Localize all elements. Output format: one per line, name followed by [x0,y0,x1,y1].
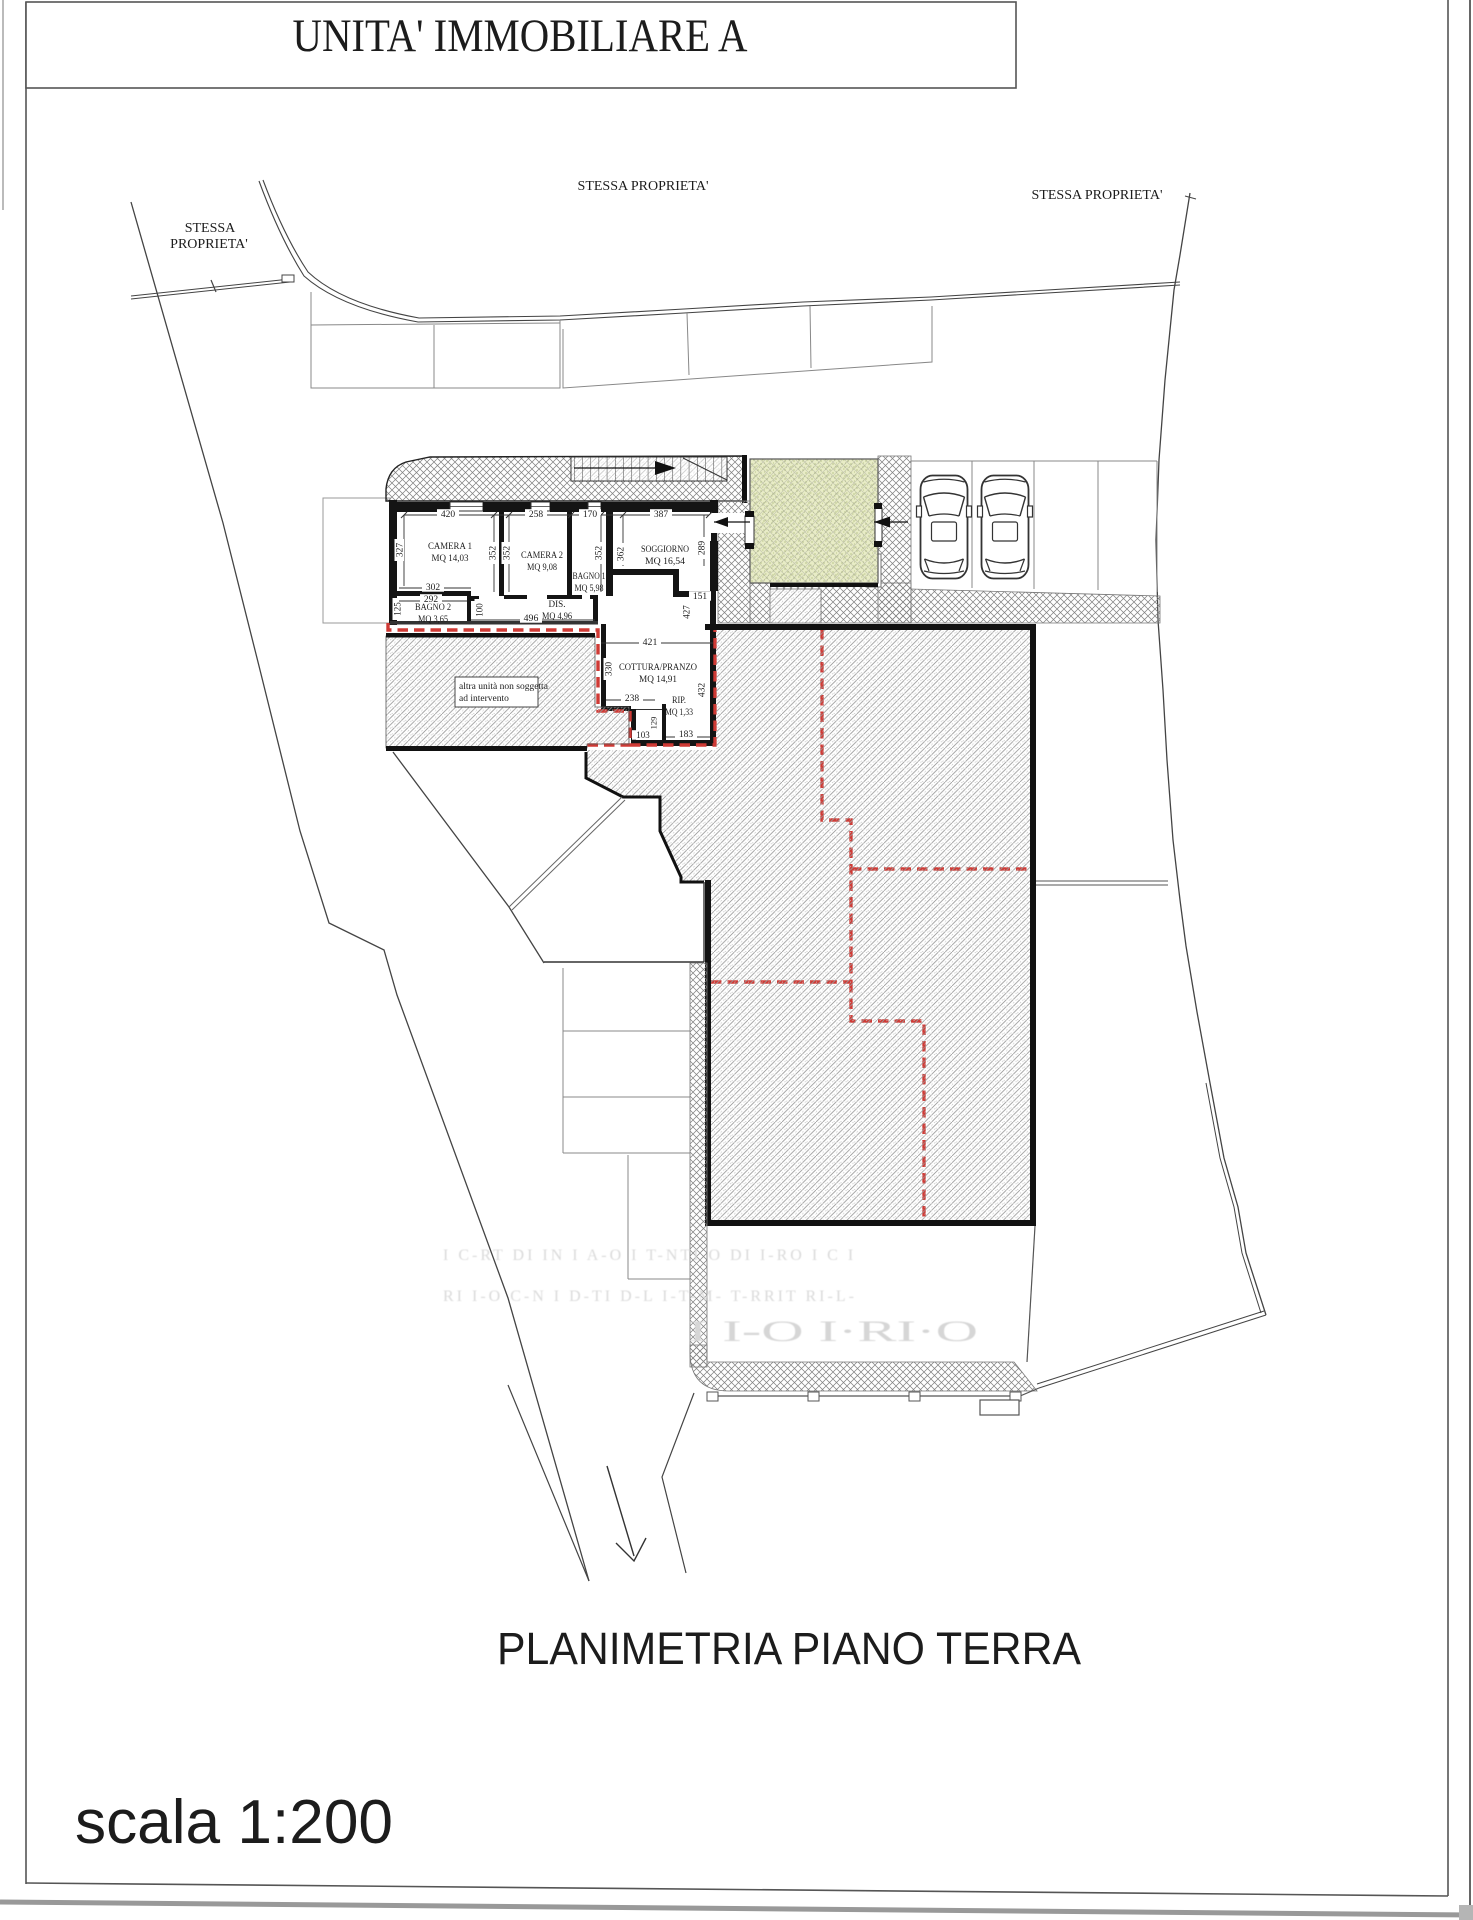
svg-text:289: 289 [698,541,708,556]
svg-text:183: 183 [679,730,694,740]
svg-text:MQ 16,54: MQ 16,54 [645,557,685,567]
svg-text:STESSA PROPRIETA': STESSA PROPRIETA' [578,179,709,194]
svg-text:420: 420 [441,510,456,520]
svg-text:MQ 4,96: MQ 4,96 [542,612,572,622]
svg-text:altra unità non soggetta: altra unità non soggetta [459,682,549,692]
svg-text:496: 496 [524,613,539,624]
svg-text:UNITA' IMMOBILIARE A: UNITA' IMMOBILIARE A [293,10,748,62]
svg-text:COTTURA/PRANZO: COTTURA/PRANZO [619,663,697,673]
svg-text:427: 427 [682,605,692,619]
svg-text:SOGGIORNO: SOGGIORNO [641,545,689,555]
svg-text:330: 330 [605,662,615,677]
svg-text:MQ 9,08: MQ 9,08 [527,563,557,573]
svg-text:387: 387 [654,510,669,520]
svg-text:352: 352 [503,546,513,561]
svg-text:PROPRIETA': PROPRIETA' [170,237,248,252]
svg-text:I I-O I·RI·O: I I-O I·RI·O [688,1315,978,1348]
svg-text:302: 302 [426,583,441,593]
svg-text:scala 1:200: scala 1:200 [75,1788,393,1857]
svg-text:MQ 14,91: MQ 14,91 [639,675,677,685]
svg-text:125: 125 [393,602,403,616]
svg-text:238: 238 [625,694,640,704]
svg-text:MQ 1,33: MQ 1,33 [665,707,693,717]
svg-text:292: 292 [424,595,439,605]
svg-text:258: 258 [529,510,544,520]
svg-text:RIP.: RIP. [672,695,686,705]
svg-text:352: 352 [595,546,605,561]
svg-text:RI I-O C-N I D-TI D-L I-T-M- T: RI I-O C-N I D-TI D-L I-T-M- T-RRIT RI-L… [443,1288,857,1305]
svg-text:ad intervento: ad intervento [459,694,509,704]
svg-text:421: 421 [643,637,658,648]
svg-text:STESSA: STESSA [185,221,236,236]
svg-text:327: 327 [396,543,406,558]
svg-text:129: 129 [649,717,659,730]
svg-text:170: 170 [583,510,598,520]
svg-text:103: 103 [636,730,650,740]
svg-text:CAMERA 2: CAMERA 2 [521,551,563,561]
svg-text:DIS.: DIS. [549,600,566,610]
svg-text:CAMERA 1: CAMERA 1 [428,542,472,552]
svg-text:MQ 3,65: MQ 3,65 [418,615,448,625]
svg-text:151: 151 [693,592,708,602]
svg-text:STESSA PROPRIETA': STESSA PROPRIETA' [1032,188,1163,203]
svg-text:362: 362 [617,547,627,562]
svg-text:I C-RT DI IN I A-O I T-NTI O D: I C-RT DI IN I A-O I T-NTI O DI I-RO I C… [443,1247,856,1264]
svg-text:MQ 5,98: MQ 5,98 [575,583,604,593]
svg-text:MQ 14,03: MQ 14,03 [432,554,469,564]
svg-text:432: 432 [698,683,708,698]
svg-text:PLANIMETRIA PIANO TERRA: PLANIMETRIA PIANO TERRA [497,1623,1081,1674]
svg-text:352: 352 [489,546,499,561]
svg-text:100: 100 [475,603,485,617]
